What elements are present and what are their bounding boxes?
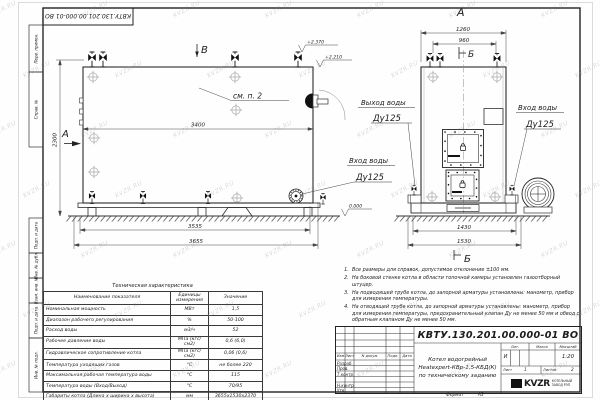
tech-cell: 3655х1530х2370 (209, 392, 263, 400)
pipe-dn-text: Ду125 (355, 173, 384, 183)
blower-fan (522, 178, 554, 213)
upper-door (443, 130, 484, 168)
sheet-label: Лист (503, 368, 512, 372)
margin-label: Подп. и дата (34, 306, 39, 334)
tech-cell: МВт (171, 305, 209, 316)
tech-cell: Габариты котла (Длина х ширина х высота) (44, 392, 171, 400)
tech-cell: Гидравлическое сопротивление котла (44, 348, 171, 360)
tech-cell: 0,06 (0,6) (209, 348, 263, 360)
col-podp: Подп. (386, 354, 400, 358)
burner-port (305, 90, 345, 120)
top-stamp: КВТУ.130.201.00.000-01 ВО (43, 8, 133, 25)
note-text: На боковой стенке котла в области топочн… (352, 275, 580, 288)
tech-cell: м3/ч (171, 326, 209, 337)
title-block-doc-number: КВТУ.130.201.00.000-01 ВО (415, 327, 581, 343)
margin-label: Справ. № (34, 100, 39, 119)
view-mark-text: В (201, 45, 208, 56)
note-text: Все размеры для справок, допустимое откл… (352, 267, 580, 273)
side-wall-fittings (80, 98, 84, 125)
boiler-body-side (83, 67, 313, 203)
dim-text: 2300 (53, 133, 59, 147)
sheets-value: 2 (571, 367, 574, 372)
valve-icon (294, 52, 302, 67)
margin-strips (29, 25, 43, 392)
elevation-text: +2.210 (325, 55, 342, 61)
format-value: А3 (478, 393, 484, 398)
dim-text: 960 (459, 38, 470, 44)
valve-icon (231, 52, 239, 67)
margin-strip-labels: Перв. примен. Справ. № Подп. и дата Инв.… (34, 33, 39, 378)
tech-header-units: Единицы измерения (171, 292, 209, 305)
note-number: 4. (341, 304, 352, 323)
section-mark-text: Б (464, 254, 471, 265)
section-mark-B-top: Б (459, 47, 474, 60)
col-izm: Изм (336, 354, 345, 358)
title-block: Изм Лист N докум. Подп. Дата Разраб. Про… (335, 326, 582, 394)
title-block-name: Котел водогрейный Heatexpert-КВр-1,5-КБД… (415, 344, 500, 392)
tech-row: Рабочее давление водыМПа (кгс/см2)0,6 (6… (44, 336, 263, 348)
note-number: 3. (341, 290, 352, 303)
elevation-0000: 0.000 (342, 204, 373, 217)
tech-cell: Диапазон рабочего регулирования (44, 315, 171, 326)
door-lock-icon (460, 144, 465, 151)
detail-callout: см. п. 2 (199, 88, 289, 101)
row-utv: Утв. (337, 388, 345, 393)
view-mark-A-side: А (61, 129, 81, 146)
drain-valve-icon (205, 192, 211, 204)
note-item: 1.Все размеры для справок, допустимое от… (341, 267, 580, 273)
tech-row: Температура уходящих газов°Сне более 220 (44, 360, 263, 371)
sheet-value: 1 (524, 367, 527, 372)
sheets-label: Листов (543, 368, 556, 372)
dim-text: 1430 (457, 225, 471, 231)
name-line2: Heatexpert-КВр-1,5-КБД(К) (418, 364, 496, 372)
tech-cell: °С (171, 371, 209, 382)
margin-label: Перв. примен. (34, 33, 39, 63)
tech-row: Расход водым3/ч52 (44, 326, 263, 337)
tech-cell: МПа (кгс/см2) (171, 348, 209, 360)
row-razrab: Разраб. (337, 361, 353, 366)
tech-cell: МПа (кгс/см2) (171, 336, 209, 348)
door-lock-icon (460, 181, 465, 188)
dim-1530: 1530 (408, 217, 521, 249)
tech-cell: Расход воды (44, 326, 171, 337)
drain-valve-icon (89, 192, 95, 204)
tech-row: Номинальная мощностьМВт1,5 (44, 305, 263, 316)
tech-cell: % (171, 315, 209, 326)
col-list: Лист (345, 354, 354, 358)
lit-value: И (501, 354, 510, 360)
tech-cell: 0,6 (6,0) (209, 336, 263, 348)
tech-cell: Номинальная мощность (44, 305, 171, 316)
tech-cell: Рабочее давление воды (44, 336, 171, 348)
col-ndok: N докум. (354, 354, 386, 358)
note-text: На подводящей трубе котла, до запорной а… (352, 290, 580, 303)
side-view (78, 52, 345, 216)
format-note: Формат А3 (446, 393, 586, 398)
company-line2: ЗАВОД РЭП (552, 384, 572, 388)
tech-cell: °С (171, 381, 209, 392)
elevation-2210: +2.210 (317, 55, 353, 68)
scale-header: Масштаб (555, 345, 581, 349)
drain-valve-icon (140, 192, 146, 204)
front-inlet-label: Вход воды Ду125 (514, 104, 564, 186)
margin-label: Взам. инв. № (34, 277, 39, 304)
tech-row: Диапазон рабочего регулирования%50-100 (44, 315, 263, 326)
elevation-text: 0.000 (349, 204, 362, 210)
pipe-label-text: Вход воды (349, 157, 389, 165)
pipe-label-text: Вход воды (518, 104, 558, 112)
name-line3: по техническому заданию (419, 372, 497, 380)
section-mark-B-bottom: Б (454, 250, 471, 265)
name-line1: Котел водогрейный (428, 356, 487, 364)
valve-icon (88, 52, 96, 67)
format-label: Формат (446, 393, 464, 398)
logo-text: KVZR (524, 379, 550, 389)
tech-cell: Максимальная рабочая температура воды (44, 371, 171, 382)
pipe-valve-icon (510, 185, 515, 195)
lower-door (446, 170, 479, 201)
tech-cell: 70/95 (209, 381, 263, 392)
tech-cell: не более 220 (209, 360, 263, 371)
tech-row: Гидравлическое сопротивление котлаМПа (к… (44, 348, 263, 360)
col-data: Дата (400, 354, 414, 358)
pipe-dn-text: Ду125 (525, 120, 554, 130)
dim-text: 3535 (188, 224, 202, 230)
view-mark-B: В (195, 44, 208, 57)
tech-table: Наименование показателя Единицы измерени… (43, 291, 263, 400)
valve-icon (99, 52, 107, 67)
tech-row: Температура воды (Вход/Выход)°С70/95 (44, 381, 263, 392)
tech-cell: 115 (209, 371, 263, 382)
tech-header-value: Значение (209, 292, 263, 305)
pipe-dn-text: Ду125 (372, 114, 401, 124)
elevation-2370: +2.370 (299, 40, 339, 53)
row-tkontr: Т.контр. (337, 372, 354, 377)
dim-text: 3655 (189, 239, 203, 245)
valve-icon (437, 54, 444, 68)
ground-line (68, 216, 550, 219)
note-number: 2. (341, 275, 352, 288)
drawing-sheet: КВТУ.130.201.00.000-01 ВО Перв. примен. … (0, 0, 600, 400)
dim-3400: 3400 (83, 123, 313, 131)
sight-glass (484, 109, 503, 125)
inlet-valve-icon (320, 194, 325, 205)
note-number: 1. (341, 267, 352, 273)
mass-header: Масса (529, 345, 555, 349)
front-view-title: А (456, 6, 465, 19)
tech-row: Максимальная рабочая температура воды°С1… (44, 371, 263, 382)
dim-960: 960 (433, 38, 496, 53)
company-logo: KVZR КОТЕЛЬНЫЙ ЗАВОД РЭП (502, 374, 581, 393)
tech-cell: Температура уходящих газов (44, 360, 171, 371)
side-base-frame (78, 203, 320, 216)
dim-text: 1530 (457, 239, 471, 245)
side-inlet-label: Вход воды Ду125 (302, 157, 395, 194)
section-mark-text: Б (468, 50, 474, 60)
pipe-label-text: Выход воды (361, 99, 406, 107)
dim-text: 1260 (456, 27, 470, 33)
view-mark-text: А (61, 129, 69, 140)
tech-cell: 1,5 (209, 305, 263, 316)
top-stamp-number: КВТУ.130.201.00.000-01 ВО (45, 12, 131, 19)
tech-table-title: Техническая характеристика (43, 283, 262, 289)
tech-cell: 52 (209, 326, 263, 337)
lit-header: Лит. (501, 345, 529, 349)
tech-cell: °С (171, 360, 209, 371)
valve-icon (494, 54, 501, 68)
tech-cell: Температура воды (Вход/Выход) (44, 381, 171, 392)
note-item: 4.На отводящей трубе котла, до запорной … (341, 304, 580, 323)
margin-label: Инв. № подл. (34, 351, 39, 379)
tech-row: Габариты котла (Длина х ширина х высота)… (44, 392, 263, 400)
tech-cell: 50-100 (209, 315, 263, 326)
note-item: 3.На подводящей трубе котла, до запорной… (341, 290, 580, 303)
front-base-frame (411, 203, 516, 213)
scale-value: 1:20 (555, 354, 581, 360)
inlet-flange (289, 189, 303, 203)
note-text: На отводящей трубе котла, до запорной ар… (352, 304, 580, 323)
elevation-text: +2.370 (307, 40, 324, 46)
note-item: 2.На боковой стенке котла в области топо… (341, 275, 580, 288)
dim-text: 3400 (191, 123, 205, 129)
notes-list: 1.Все размеры для справок, допустимое от… (341, 267, 580, 325)
tech-cell: мм (171, 392, 209, 400)
logo-mark-icon (511, 379, 522, 388)
tech-header-name: Наименование показателя (44, 292, 171, 305)
row-prov: Пров. (337, 366, 349, 371)
valve-icon (427, 54, 434, 68)
detail-ref-text: см. п. 2 (233, 92, 262, 101)
margin-label: Подп. и дата (34, 221, 39, 249)
company-name: КОТЕЛЬНЫЙ ЗАВОД РЭП (552, 380, 572, 387)
row-nkontr: Н.контр. (337, 383, 355, 388)
dim-3535: 3535 (80, 206, 310, 234)
pipe-valve-icon (412, 185, 417, 195)
margin-label: Инв. № дубл. (34, 252, 39, 279)
